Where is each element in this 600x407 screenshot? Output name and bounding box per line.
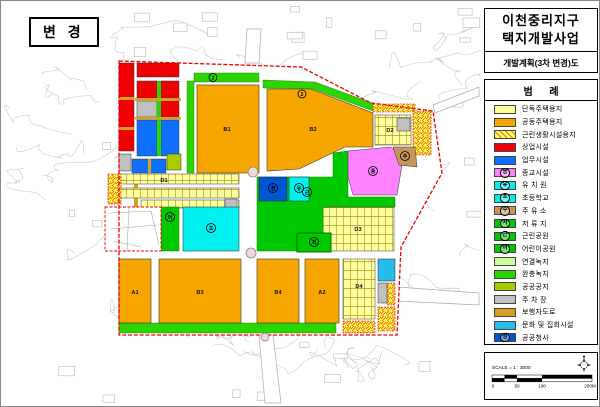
label-b4: B4 [274,290,282,296]
public-open-space [167,154,181,170]
scale-tick: 200M [584,384,596,389]
legend-item: 보행자도로 [485,306,597,319]
legend-item: 초초등학교 [485,192,597,205]
legend-swatch: 저 [494,219,516,228]
title-line2: 택지개발사업 [502,30,580,48]
label-d2: D2 [386,128,393,134]
legend-title: 범 례 [485,80,597,101]
mark-park: 근 [305,189,310,196]
legend-swatch: 근 [494,232,516,241]
mark-pond: 저 [312,239,317,246]
legend-item: 완충녹지 [485,268,597,281]
green-band [194,73,259,82]
legend-swatch [494,282,516,291]
mark-buffer-2: 2 [212,76,215,82]
label-b3: B3 [196,290,203,296]
legend-item: 문화 및 집회시설 [485,319,597,332]
commercial-block [137,63,179,77]
legend-item: 공동주택용지 [485,116,597,129]
scale-tick: 50 [514,384,520,389]
legend-swatch [494,156,516,165]
scale-ratio-text: SCALE = 1 : 3000 [492,366,531,371]
parking-block-d2 [397,118,410,131]
legend-swatch: 초 [494,194,516,203]
mark-buffer-2: 2 [301,92,304,98]
map-canvas: B1 B2 A1 B3 B4 A2 D1 D2 D3 D4 2 2 종 주 청 [1,1,481,407]
legend-item: 공공공지 [485,281,597,294]
roundabout [248,167,258,177]
lot-row-d1 [119,174,239,184]
lot-row-d1 [119,188,239,198]
legend-item: 주 차 장 [485,293,597,306]
legend-item: 유유 치 원 [485,179,597,192]
scale-box: SCALE = 1 : 3000 0 50 100 200M [484,352,598,400]
legend-swatch [494,257,516,266]
commercial-block [119,63,134,151]
scale-bar: 0 50 100 200M [491,374,597,394]
parking-block [378,283,387,303]
legend-swatch: 주 [494,206,516,215]
legend-swatch [494,143,516,152]
children-park [161,207,179,251]
scale-tick: 100 [538,384,546,389]
legend-swatch [494,118,516,127]
religious-site [348,147,403,195]
label-d1: D1 [160,178,167,184]
mark-kindergarten: 유 [297,185,302,192]
roundabout [246,248,256,258]
scale-tick: 0 [492,384,495,389]
green-band-bottom [119,323,336,333]
legend-item: 상업시설 [485,141,597,154]
title-line1: 이천중리지구 [502,12,580,30]
change-stamp: 변 경 [29,17,99,47]
mark-elementary-school: 초 [209,225,214,232]
commercial-block [161,101,179,117]
label-d3: D3 [354,227,361,233]
legend-item: 근근린공원 [485,230,597,243]
mark-public-office: 청 [271,185,276,192]
legend-box: 범 례 단독주택용지 공동주택용지 근린생활시설용지 상업시설 업무시설 종종교… [484,79,598,345]
label-a2: A2 [318,290,325,296]
legend-item: 업무시설 [485,154,597,167]
drawing-title: 이천중리지구 택지개발사업 [485,9,597,52]
label-b1: B1 [223,127,230,133]
legend-swatch [494,308,516,317]
legend-item: 주주 유 소 [485,205,597,218]
legend-item: 저저 류 지 [485,217,597,230]
legend-item: 근린생활시설용지 [485,128,597,141]
green-strip [187,81,194,173]
legend-swatch [494,295,516,304]
legend-swatch [494,321,516,330]
label-d4: D4 [355,284,363,290]
legend-item: 어어린이공원 [485,243,597,256]
business-block [161,120,179,156]
excluded-village [105,207,161,251]
legend-item: 청공공청사 [485,331,597,344]
legend-swatch [494,105,516,114]
legend-item: 연결녹지 [485,255,597,268]
mark-children-park: 어 [168,214,173,221]
title-box: 이천중리지구 택지개발사업 개발계획(3차 변경)도 [484,8,598,73]
legend-item: 단독주택용지 [485,103,597,116]
roundabout [261,333,269,341]
parking-block [137,101,157,117]
legend-swatch [494,270,516,279]
mark-gas-station: 주 [403,153,408,160]
mark-religious: 종 [371,168,376,175]
commercial-block [161,81,179,98]
legend-swatch: 유 [494,181,516,190]
label-b2: B2 [309,127,316,133]
legend-swatch: 어 [494,244,516,253]
commercial-block [137,81,157,98]
legend-swatch: 청 [494,333,516,342]
legend-swatch: 종 [494,168,516,177]
parking-block [119,154,131,171]
cultural-facility-site [378,259,395,281]
drawing-subtitle: 개발계획(3차 변경)도 [485,52,597,73]
north-arrow-icon [576,355,592,373]
legend-swatch [494,130,516,139]
plan-drawing: B1 B2 A1 B3 B4 A2 D1 D2 D3 D4 2 2 종 주 청 [0,0,600,407]
business-block [137,120,157,156]
legend-item: 종종교시설 [485,166,597,179]
legend-items: 단독주택용지 공동주택용지 근린생활시설용지 상업시설 업무시설 종종교시설 유… [485,101,597,344]
label-a1: A1 [131,290,138,296]
